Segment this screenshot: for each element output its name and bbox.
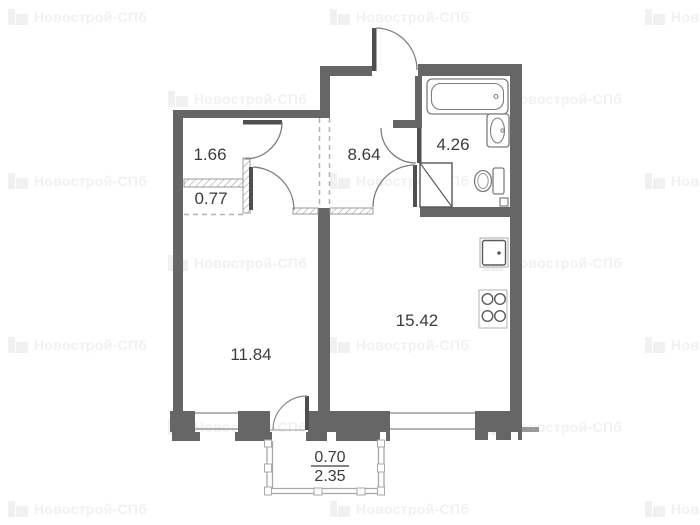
floor-plan: 1.66 0.77 8.64 4.26 11.84 15.42 0.70 2.3… — [0, 0, 700, 525]
room-label-closet-lower: 0.77 — [194, 189, 227, 208]
room-label-hallway: 8.64 — [347, 145, 380, 164]
kitchen-door — [373, 165, 417, 207]
balcony-label: 0.70 2.35 — [311, 449, 349, 485]
room-label-kitchen: 15.42 — [396, 311, 439, 330]
kitchen-sink-icon — [480, 238, 508, 267]
room-label-closet-upper: 1.66 — [193, 145, 226, 164]
balcony-area-counted: 0.70 — [314, 449, 345, 466]
room-label-bathroom: 4.26 — [436, 135, 469, 154]
bathroom-door — [381, 128, 422, 163]
bathtub-icon — [427, 79, 508, 114]
toilet-icon — [475, 168, 509, 206]
floor-plan-page: Новострой-СПб Новострой-СПб Новострой-СП… — [0, 0, 700, 525]
room-door — [249, 167, 294, 210]
bath-sink-icon — [487, 114, 509, 147]
closet-door — [243, 120, 282, 159]
room-label-living-room: 11.84 — [230, 345, 271, 364]
entrance-door — [372, 28, 417, 71]
balcony-door — [273, 396, 309, 430]
stove-icon — [479, 290, 507, 328]
vent-shaft-icon — [420, 163, 452, 207]
balcony-area-total: 2.35 — [314, 468, 345, 485]
